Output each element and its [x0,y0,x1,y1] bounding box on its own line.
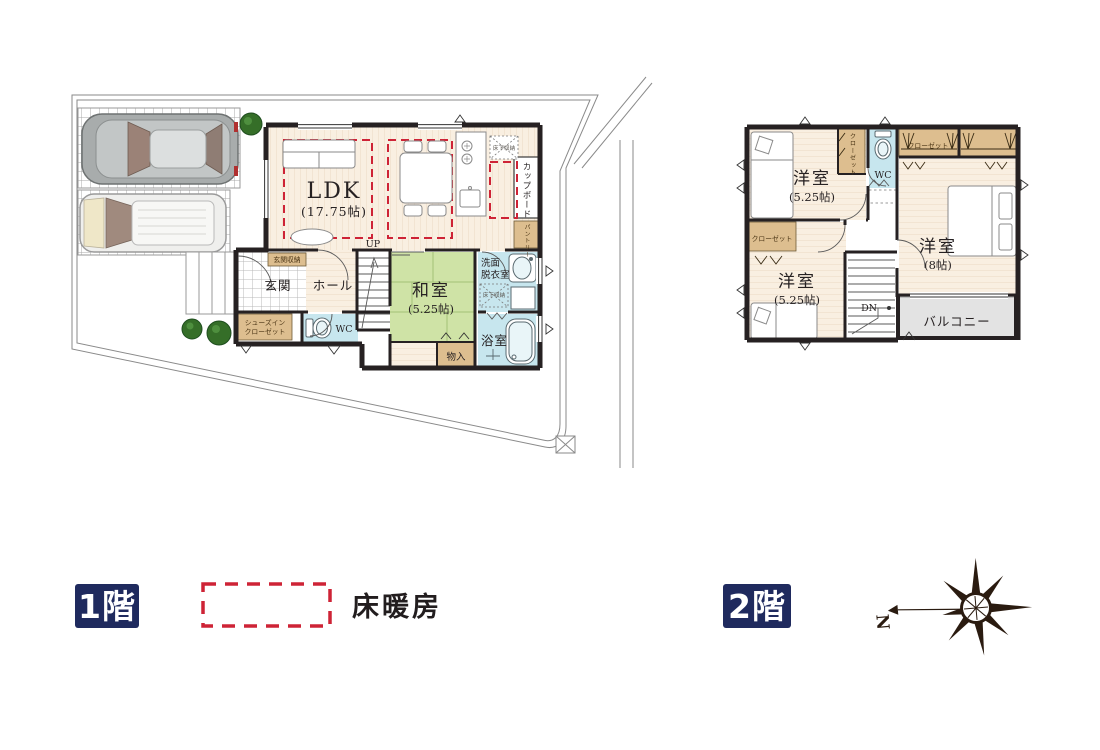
ldk-size: (17.75帖) [301,204,367,219]
bedroom3-label: 洋室 [778,272,816,292]
shoes-closet-box [238,314,292,340]
stairs-down [846,252,897,340]
closet-bottom-label: クローゼット [752,234,793,243]
wc2-label: WC [874,170,891,181]
dn-label: DN [861,303,877,314]
washroom-label-1: 洗面 [481,257,500,269]
ldk-label: LDK [307,179,362,204]
bed2-icon [948,186,1016,256]
floor2-plan: 洋室 (5.25帖) 洋室 (8帖) 洋室 (5.25帖) クローゼット クロー… [737,117,1028,350]
stairs-up [357,250,390,330]
cupboard-label: カップボード [521,162,531,219]
genkan-storage-label: 玄関収納 [273,255,300,264]
floorplan-svg: LDK (17.75帖) 和室 (5.25帖) 玄関 ホール 玄関収納 シューズ… [0,0,1100,750]
hall-label: ホール [313,278,354,293]
bedroom1-size: (5.25帖) [789,190,835,204]
closet-top-label: クローゼット [908,141,949,150]
tree-icon [240,113,262,135]
bedroom2-size: (8帖) [924,258,952,272]
bed3-icon [751,303,817,339]
sink-icon [509,254,536,282]
up-label: UP [366,239,381,250]
washitsu-size: (5.25帖) [408,302,454,316]
legend: 1階 床暖房 2階 N [75,553,1036,665]
compass-north-label: N [871,613,892,630]
floor-heating-legend-swatch [203,584,330,626]
closet-top-left-label: クローゼット [849,133,856,176]
washer-icon [511,287,535,309]
washitsu-label: 和室 [412,281,450,301]
floor1-badge-label: 1階 [78,587,136,626]
tree-icon [182,319,202,339]
bedroom3-size: (5.25帖) [774,293,820,307]
balcony-label: バルコニー [923,314,990,329]
storage-label: 物入 [446,351,466,363]
garage [78,108,240,314]
vanity-dotted-box [869,190,897,203]
washitsu-step [390,342,437,368]
sofa-icon [283,140,355,168]
floor2-badge-label: 2階 [728,587,786,626]
underfloor-wash-label: 床下収納 [483,291,506,299]
toilet2-icon [875,131,891,159]
bed1-icon [751,132,793,218]
shoes-closet-label-1: シューズイン [245,318,286,327]
car-sedan [82,114,238,184]
compass-rose: N [867,553,1036,665]
approach-steps [186,252,236,314]
car-minivan [80,194,226,252]
shoes-closet-label-2: クローゼット [245,327,286,336]
bathroom-label: 浴室 [481,333,508,348]
wc1-label: WC [335,324,352,335]
pantry-label: パントリー [523,224,530,258]
kitchen-counter-icon [456,132,486,216]
floor-heating-legend-label: 床暖房 [352,591,442,623]
bedroom2-label: 洋室 [919,237,957,257]
floorplan-canvas: LDK (17.75帖) 和室 (5.25帖) 玄関 ホール 玄関収納 シューズ… [0,0,1100,750]
tree-icon [207,321,231,345]
underfloor-kitchen-label: 床下収納 [493,144,516,152]
floor1-plan: LDK (17.75帖) 和室 (5.25帖) 玄関 ホール 玄関収納 シューズ… [236,115,553,368]
washroom-label-2: 脱衣室 [481,269,510,281]
rug-icon [291,229,333,245]
genkan-label: 玄関 [264,278,291,293]
bedroom1-label: 洋室 [793,169,831,189]
